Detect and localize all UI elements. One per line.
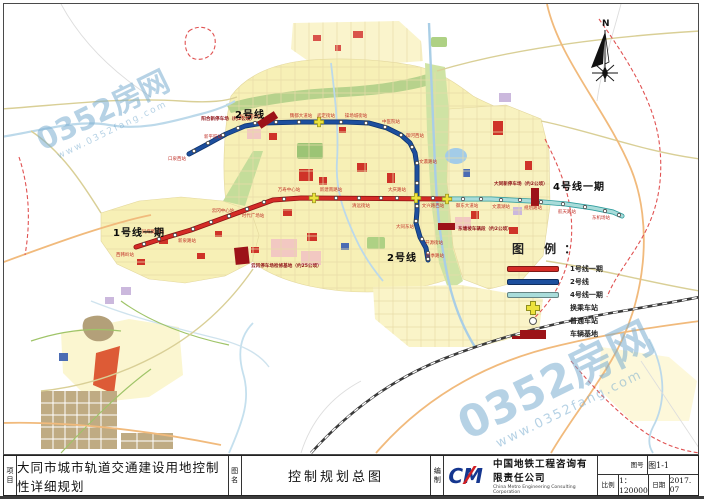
svg-text:航天路站: 航天路站: [558, 208, 576, 215]
company-name-cn: 中国地铁工程咨询有限责任公司: [493, 456, 597, 484]
fig-no-value: 图1-1: [648, 456, 669, 474]
svg-text:武定街站: 武定街站: [317, 112, 335, 119]
north-arrow: N: [582, 14, 628, 92]
svg-text:大同东站: 大同东站: [396, 223, 414, 230]
legend-item-transfer-station: 换乘车站: [504, 302, 629, 314]
ordinary-station-icon: [504, 317, 562, 325]
svg-text:四季路站: 四季路站: [426, 252, 444, 259]
svg-text:东机场站: 东机场站: [592, 214, 610, 221]
company-cell: CM 中国地铁工程咨询有限责任公司 China Metro Engineerin…: [444, 456, 598, 495]
svg-text:魏都大道站: 魏都大道站: [290, 112, 313, 119]
svg-text:新泉路站: 新泉路站: [178, 237, 196, 244]
drawing-title: 控制规划总图: [242, 456, 432, 495]
plan-sheet: 口泉西站新平旺站振华南街站魏都大道站武定街站操场城街站中医院站御河西站文瀛路站大…: [0, 0, 704, 499]
drawing-name-label: 图名: [229, 456, 242, 495]
title-block: 项目 大同市城市轨道交通建设用地控制性详细规划 图名 控制规划总图 编制 CM …: [3, 455, 699, 496]
svg-text:御河西站: 御河西站: [406, 132, 424, 139]
depot-icon: [504, 330, 562, 339]
legend-item-depot: 车辆基地: [504, 328, 629, 340]
fig-no-label: 图号: [627, 456, 648, 474]
project-title: 大同市城市轨道交通建设用地控制性详细规划: [17, 456, 229, 495]
legend-item-line2: 2号线: [504, 276, 629, 288]
legend-title: 图 例：: [512, 240, 629, 257]
date-label: 日期: [649, 475, 670, 495]
svg-text:时代广场站: 时代广场站: [242, 212, 265, 219]
svg-text:操场城街站: 操场城街站: [345, 112, 368, 119]
svg-text:文兴路西站: 文兴路西站: [422, 202, 445, 209]
map-legend: 图 例： 1号线一期 2号线 4号线一期 换乘车站 普通车站: [504, 240, 629, 341]
svg-text:新平旺站: 新平旺站: [204, 133, 222, 140]
svg-text:东塘坡车辆段（约2公顷）: 东塘坡车辆段（约2公顷）: [458, 225, 512, 232]
svg-text:中医院站: 中医院站: [382, 118, 400, 125]
svg-text:2号线: 2号线: [235, 108, 265, 121]
svg-text:御东大道站: 御东大道站: [456, 202, 479, 209]
svg-text:规划路站: 规划路站: [524, 204, 542, 211]
legend-item-line1: 1号线一期: [504, 263, 629, 275]
legend-item-ordinary-station: 普通车站: [504, 315, 629, 327]
svg-text:2号线: 2号线: [387, 251, 417, 264]
company-logo: CM: [444, 464, 487, 488]
svg-text:4号线一期: 4号线一期: [553, 180, 605, 193]
svg-text:大同新停车场（约2公顷）: 大同新停车场（约2公顷）: [494, 180, 548, 187]
scale-label: 比例: [598, 475, 619, 495]
svg-text:新建南路站: 新建南路站: [320, 186, 343, 193]
svg-text:清远街站: 清远街站: [352, 202, 370, 209]
svg-text:开源街站: 开源街站: [425, 239, 443, 246]
svg-text:1号线一期: 1号线一期: [113, 226, 165, 239]
line4-swatch: [504, 292, 562, 298]
project-label: 项目: [4, 456, 17, 495]
svg-text:文瀛路站: 文瀛路站: [419, 158, 437, 165]
transfer-station-icon: [504, 300, 562, 316]
svg-text:文瀛湖站: 文瀛湖站: [492, 203, 510, 210]
date-value: 2017. 07: [670, 475, 698, 495]
map-area: 口泉西站新平旺站振华南街站魏都大道站武定街站操场城街站中医院站御河西站文瀛路站大…: [3, 3, 699, 455]
line1-swatch: [504, 266, 562, 272]
line2-swatch: [504, 279, 562, 285]
svg-text:万寿中心站: 万寿中心站: [278, 186, 301, 193]
svg-text:云冈中心站: 云冈中心站: [212, 207, 235, 214]
svg-text:N: N: [602, 19, 610, 29]
producer-label: 编制: [431, 456, 444, 495]
svg-text:西韩岭站: 西韩岭站: [116, 251, 134, 258]
sheet-info: 图号 图1-1 比例 1：120000 日期 2017. 07: [598, 456, 698, 495]
svg-text:大庆路站: 大庆路站: [388, 186, 406, 193]
svg-text:口泉西站: 口泉西站: [168, 155, 186, 162]
scale-value: 1：120000: [619, 475, 649, 495]
svg-text:云冈停车场检修基地（约25公顷）: 云冈停车场检修基地（约25公顷）: [251, 262, 322, 269]
company-name-en: China Metro Engineering Consulting Corpo…: [493, 485, 597, 495]
